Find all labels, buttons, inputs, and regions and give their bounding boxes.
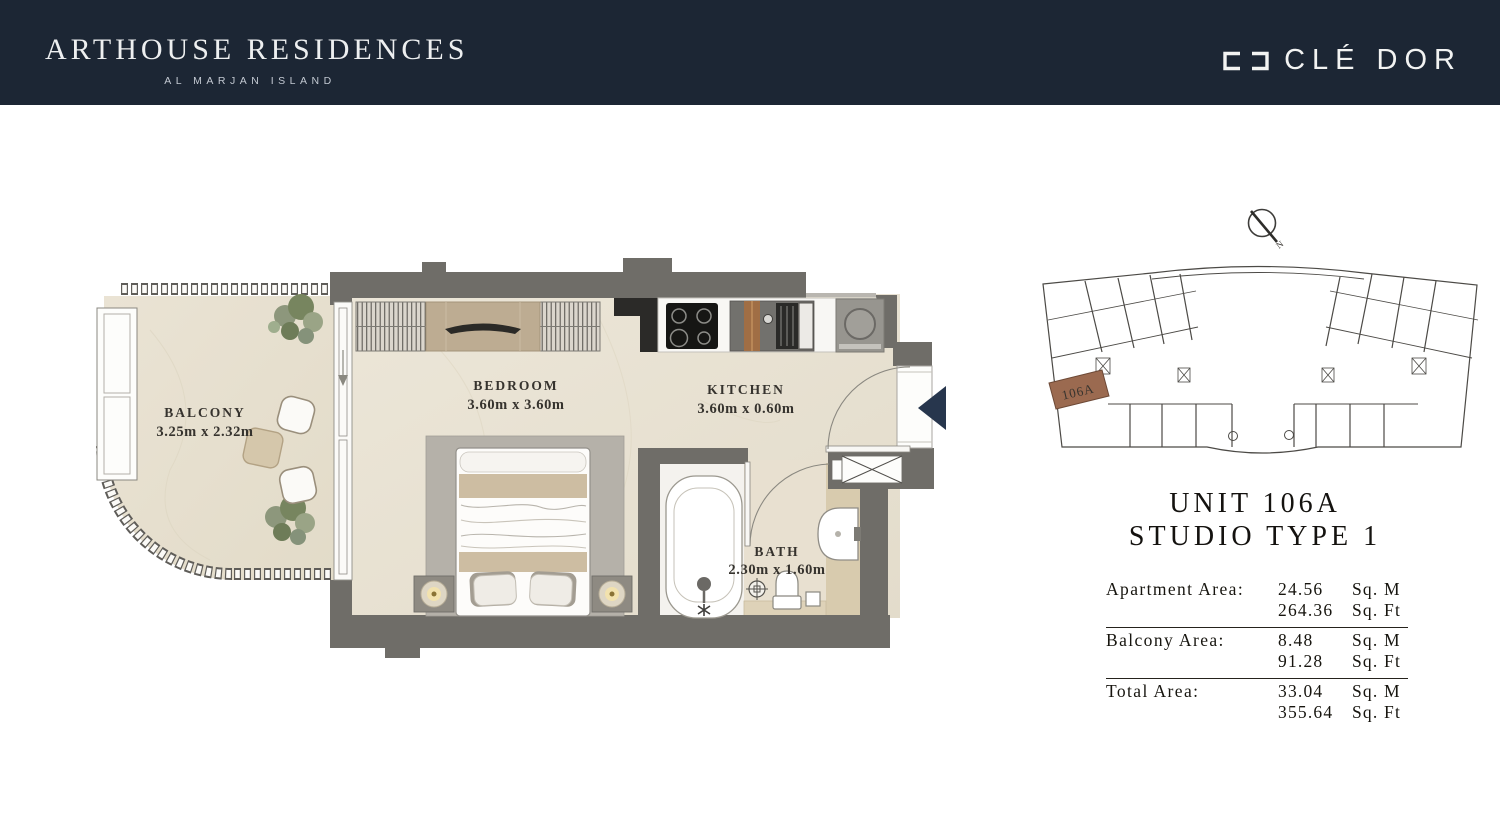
unit-number: UNIT 106A bbox=[1040, 487, 1470, 520]
floor-plan: BALCONY 3.25m x 2.32m bbox=[90, 253, 960, 668]
kitchen-dimensions: 3.60m x 0.60m bbox=[697, 401, 794, 417]
table-row: Total Area: 33.04 355.64 Sq. M Sq. Ft bbox=[1106, 679, 1408, 729]
header-bar: ARTHOUSE RESIDENCES AL MARJAN ISLAND CLÉ… bbox=[0, 0, 1500, 105]
area-table: Apartment Area: 24.56 264.36 Sq. M Sq. F… bbox=[1106, 577, 1408, 729]
area-sqm-unit: Sq. M bbox=[1352, 579, 1408, 600]
table-row: Apartment Area: 24.56 264.36 Sq. M Sq. F… bbox=[1106, 577, 1408, 627]
area-sqft-value: 355.64 bbox=[1278, 702, 1352, 723]
area-sqft-unit: Sq. Ft bbox=[1352, 702, 1408, 723]
area-sqft-unit: Sq. Ft bbox=[1352, 600, 1408, 621]
brand-block: ARTHOUSE RESIDENCES AL MARJAN ISLAND bbox=[45, 33, 455, 87]
basin-icon bbox=[818, 508, 861, 560]
bath-dimensions: 2.30m x 1.60m bbox=[728, 562, 825, 578]
balcony-dimensions: 3.25m x 2.32m bbox=[156, 424, 253, 440]
compass-north-label: N bbox=[1274, 238, 1286, 250]
area-sqft-unit: Sq. Ft bbox=[1352, 651, 1408, 672]
area-sqm-unit: Sq. M bbox=[1352, 630, 1408, 651]
bath-label: BATH bbox=[754, 544, 799, 559]
brand-subtitle: AL MARJAN ISLAND bbox=[45, 75, 455, 87]
compass-icon: N bbox=[1249, 210, 1286, 251]
table-row: Balcony Area: 8.48 91.28 Sq. M Sq. Ft bbox=[1106, 628, 1408, 678]
area-row-label: Total Area: bbox=[1106, 681, 1278, 723]
balcony-glass-wall bbox=[97, 308, 137, 480]
balcony-label: BALCONY bbox=[164, 405, 246, 420]
brochure-page: ARTHOUSE RESIDENCES AL MARJAN ISLAND CLÉ… bbox=[0, 0, 1500, 820]
area-row-label: Balcony Area: bbox=[1106, 630, 1278, 672]
cledor-logo: CLÉ DOR bbox=[1222, 44, 1462, 77]
bed bbox=[456, 448, 590, 616]
brand-title: ARTHOUSE RESIDENCES bbox=[45, 33, 455, 67]
bath-cabinet bbox=[806, 592, 820, 606]
bed-area bbox=[414, 436, 632, 616]
area-sqft-value: 91.28 bbox=[1278, 651, 1352, 672]
closet bbox=[832, 456, 902, 483]
kitchen-label: KITCHEN bbox=[707, 382, 785, 397]
unit-type: STUDIO TYPE 1 bbox=[1040, 520, 1470, 553]
pillow bbox=[473, 574, 517, 606]
key-plan: N bbox=[1030, 195, 1490, 465]
washer-icon bbox=[836, 299, 884, 352]
bathtub bbox=[666, 476, 742, 618]
balcony-chair bbox=[278, 465, 318, 505]
pillow bbox=[529, 574, 573, 606]
cledor-logo-icon bbox=[1222, 51, 1270, 71]
area-sqm-unit: Sq. M bbox=[1352, 681, 1408, 702]
sink-icon bbox=[730, 301, 814, 351]
lamp-icon bbox=[421, 581, 447, 607]
balcony: BALCONY 3.25m x 2.32m bbox=[97, 289, 345, 580]
balcony-door bbox=[334, 302, 352, 580]
unit-title: UNIT 106A STUDIO TYPE 1 bbox=[1040, 487, 1470, 553]
building-outline bbox=[1043, 267, 1478, 454]
bedroom-label: BEDROOM bbox=[473, 378, 558, 393]
cledor-logo-text: CLÉ DOR bbox=[1284, 44, 1462, 77]
lamp-icon bbox=[599, 581, 625, 607]
area-sqft-value: 264.36 bbox=[1278, 600, 1352, 621]
cooktop-icon bbox=[666, 303, 718, 349]
wardrobe bbox=[356, 302, 600, 351]
area-sqm-value: 33.04 bbox=[1278, 681, 1352, 702]
area-row-label: Apartment Area: bbox=[1106, 579, 1278, 621]
area-sqm-value: 8.48 bbox=[1278, 630, 1352, 651]
kitchen-counter bbox=[658, 298, 884, 352]
bedroom-dimensions: 3.60m x 3.60m bbox=[467, 397, 564, 413]
area-sqm-value: 24.56 bbox=[1278, 579, 1352, 600]
